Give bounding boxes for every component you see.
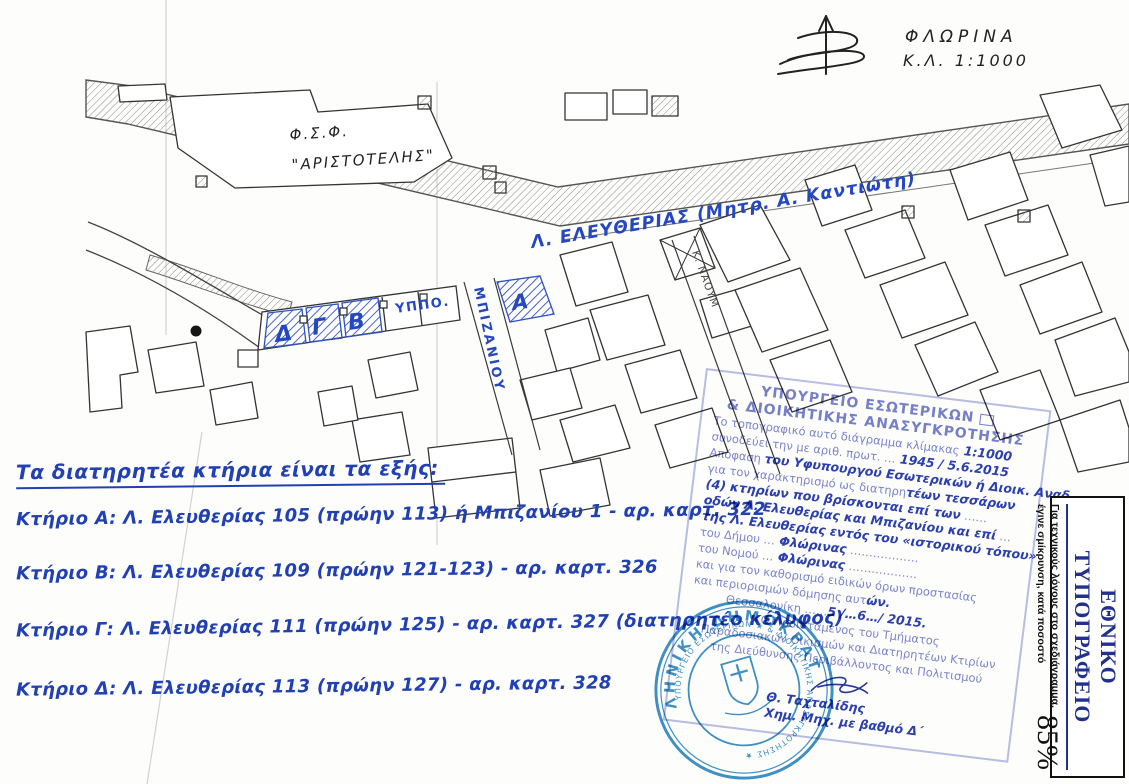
- registry-box-icon: [980, 413, 995, 426]
- map-point-marker: [191, 326, 202, 337]
- national-printing-office-box: ΕΘΝΙΚΟ ΤΥΠΟΓΡΑΦΕΙΟ Για τεχνικούς λόγους …: [1046, 496, 1125, 780]
- building-letter-b: Β: [346, 309, 366, 336]
- city-title: ΦΛΩΡΙΝΑ: [905, 27, 1018, 47]
- round-stamp-ministry: ΥΠΟΥΡΓΕΙΟ ΕΣΩΤΕΡΙΚΩΝ ★ & ΔΙΟΙΚΗΤΙΚΗΣ ΑΝΑ…: [657, 603, 831, 777]
- reduction-percentage: 85%: [1030, 715, 1064, 770]
- north-arrow-icon: [778, 16, 864, 74]
- printing-office-inner: ΕΘΝΙΚΟ ΤΥΠΟΓΡΑΦΕΙΟ Για τεχνικούς λόγους …: [1050, 496, 1125, 778]
- scanned-topographic-document: ΦΛΩΡΙΝΑ Κ.Λ. 1:1000 Φ.Σ.Φ. "ΑΡΙΣΤΟΤΕΛΗΣ"…: [0, 0, 1129, 784]
- notes-heading: Τα διατηρητέα κτήρια είναι τα εξής:: [16, 456, 445, 489]
- printing-office-title: ΕΘΝΙΚΟ ΤΥΠΟΓΡΑΦΕΙΟ: [1066, 504, 1121, 770]
- reduction-note-text: Για τεχνικούς λόγους στο σχεδιάγραμμα, έ…: [1033, 504, 1060, 710]
- scale-note: Κ.Λ. 1:1000: [903, 51, 1029, 70]
- stamp-handwriting: ών.: [866, 592, 892, 610]
- stamp-printed-text: …: [995, 529, 1012, 545]
- preserved-buildings-notes: Τα διατηρητέα κτήρια είναι τα εξής: Κτήρ…: [16, 458, 746, 487]
- side-street-label: ΜΠΙΖΑΝΙΟΥ: [470, 286, 507, 394]
- reduction-note: Για τεχνικούς λόγους στο σχεδιάγραμμα, έ…: [1030, 504, 1066, 770]
